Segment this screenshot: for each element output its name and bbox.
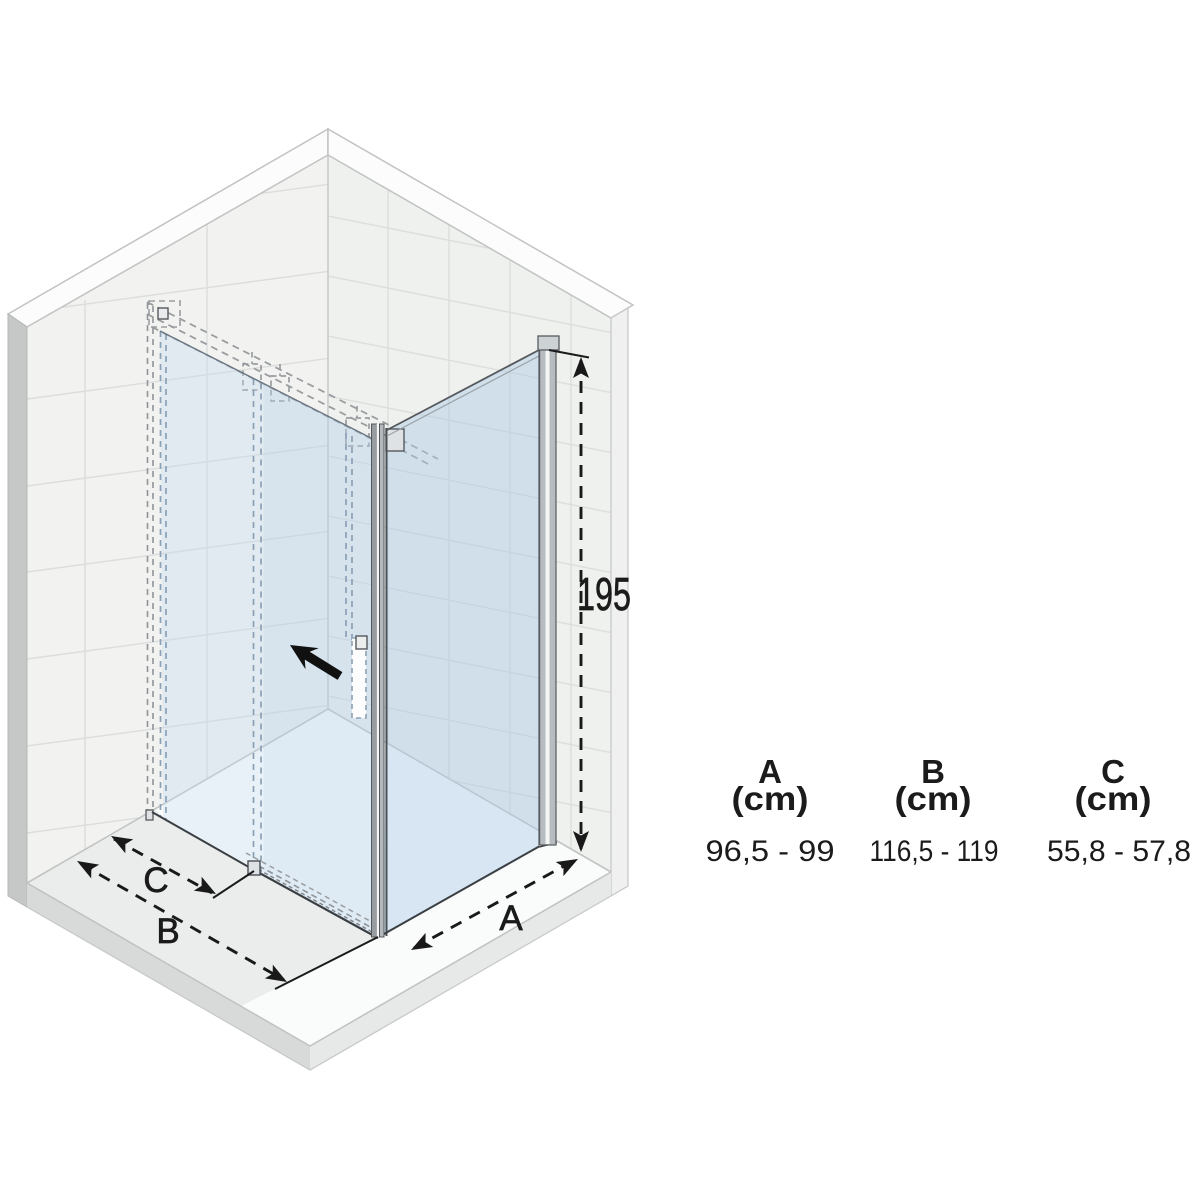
svg-text:195: 195	[577, 568, 631, 620]
svg-text:(cm): (cm)	[732, 780, 809, 817]
svg-text:116,5 - 119: 116,5 - 119	[870, 835, 999, 868]
svg-text:(cm): (cm)	[895, 780, 972, 817]
svg-text:55,8 - 57,8: 55,8 - 57,8	[1047, 835, 1191, 868]
svg-text:A: A	[499, 899, 523, 938]
svg-text:B: B	[156, 912, 179, 951]
svg-text:(cm): (cm)	[1075, 780, 1152, 817]
svg-text:96,5 - 99: 96,5 - 99	[706, 835, 835, 868]
svg-text:C: C	[143, 861, 168, 900]
